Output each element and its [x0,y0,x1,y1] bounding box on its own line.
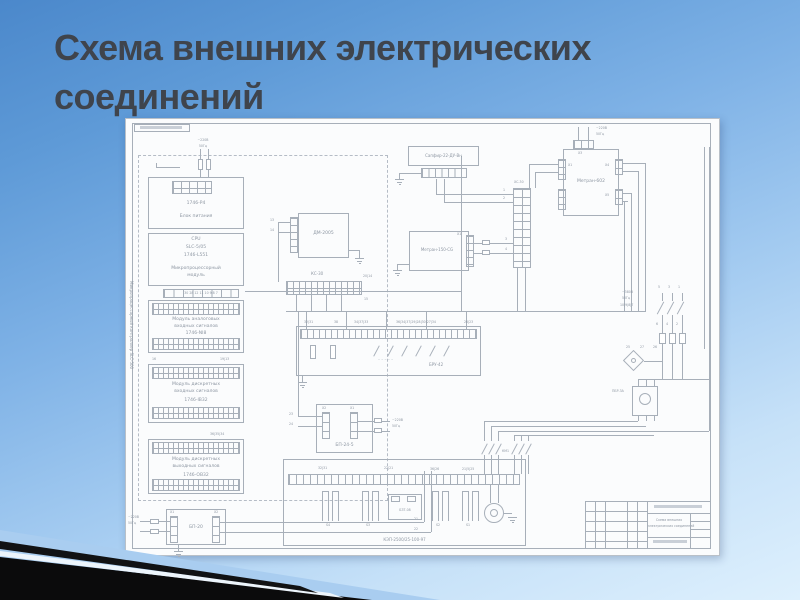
slide-title: Схема внешних электрических соединений [54,24,754,121]
wire [278,222,279,282]
connector-column [290,217,298,253]
wire [359,250,360,258]
connector-label: Х2 [322,406,326,410]
terminal-row [421,168,467,178]
wire [514,435,515,441]
fuse-icon [482,250,490,255]
wire [208,170,209,177]
wire [298,426,322,427]
wire [341,295,342,311]
bzt08-label: БЗТ-08 [388,508,422,512]
wire [311,295,312,311]
terminal-row [300,329,477,339]
wire [436,179,437,194]
wire [156,167,180,168]
wire [278,222,290,223]
wire [490,485,491,503]
wire [529,164,558,165]
power-label-50hz: 50Гц [596,132,604,136]
title-block-line [647,537,711,538]
connector-label: Х1 [170,510,174,514]
slide-title-line1: Схема внешних электрических [54,24,754,73]
pbr3a-label: ПБР-3А [612,389,624,393]
terminal-row [152,338,240,350]
switch-icon [372,491,379,521]
switch-label: S2 [436,523,440,527]
switch-icon [442,491,449,521]
pin-label: 32|31 [304,320,313,324]
pin-label: 25 [626,345,630,349]
di-line: Модуль дискретных [148,382,244,388]
pin-label: 16 [152,357,156,361]
wire [498,431,499,441]
wire [638,416,639,421]
wire [662,293,663,301]
bzt-tab [391,496,400,502]
switch-icon [462,491,469,521]
pin-label: 2 [503,196,505,200]
pin-label: 6 [656,322,658,326]
switch-label: S3 [366,523,370,527]
pin-label: 4 [505,247,507,251]
connector-label: Х5 [605,193,609,197]
wire [709,147,710,431]
ai-model: 1746-NI8 [148,331,244,337]
fuse-icon [150,529,159,534]
wire [484,455,485,474]
wire [514,435,654,436]
controller-label: Микропроцессорный контроллер SLC-500 [129,281,134,496]
title-block-line [647,513,711,514]
wire [528,435,529,441]
pin-label: 21|5|25 [462,467,474,471]
wire [484,421,485,441]
do-model: 1746-OB32 [148,473,244,479]
sapfir-label: Сапфир-22-ДУ-Вн [408,153,479,158]
connector-label: Х1 [568,163,572,167]
wire [662,344,663,379]
pin-label: 26|23 [464,320,473,324]
title-block-text-strip [654,505,702,508]
xs30-label: ХС-30 [514,180,524,184]
wire [704,147,705,349]
connector-x3 [573,140,594,149]
wire [491,426,646,427]
wire [645,163,646,311]
ground-icon [355,258,364,264]
wire [682,315,683,333]
cpu-line: CPU [148,237,244,243]
wire [525,268,526,311]
ground-icon [298,382,307,388]
terminal-row [152,303,240,315]
wire [528,455,529,474]
switch-icon [472,491,479,521]
wire [624,201,625,311]
wire [672,344,673,379]
connector-column [322,412,330,439]
wire [521,455,522,474]
connector-column [615,159,623,175]
switch-icon [332,491,339,521]
wire [623,171,638,172]
title-block-line [690,521,711,522]
terminal-row [152,479,240,491]
pin-label: 5 [658,285,660,289]
wire [491,455,492,474]
wire [278,232,290,233]
wire [498,455,499,474]
fuse-icon [206,159,211,170]
fuse-icon [669,333,676,344]
wire [399,173,421,174]
pin-label: 19|13 [220,357,229,361]
pin-label: 2 [676,322,678,326]
bp245-label: БП-24-5 [316,443,373,449]
pin-label: 22|21 [384,466,393,470]
wire [654,416,655,421]
wire [588,127,589,140]
connector-column [170,516,178,543]
pin-label: 24 [289,422,293,426]
wire [672,293,673,301]
power-label-50hz: 50Гц [392,424,400,428]
dm2005-label: ДМ-2005 [298,231,349,237]
wire [672,315,673,333]
cpu-line: модуль [148,273,244,279]
wire [623,163,645,164]
km1-label: КМ1 [502,449,509,453]
wire [140,531,150,532]
wire [498,431,709,432]
slide-title-line2: соединений [54,73,754,122]
kep2500-label: КЭП-2500/25-100-97 [283,537,526,542]
cpu-line: 1746-L551 [148,253,244,259]
wire [504,513,512,514]
cpu-terminal-numbers: 30 28 12 11 10 9 8 7 [163,291,239,295]
pin-label: 26 [653,345,657,349]
power-label-50hz: 50Гц [188,144,218,148]
pin-label: 36|35|34 [210,432,224,436]
pin-label: 38 [334,320,338,324]
pin-label: 1 [503,188,505,192]
switch-icon [322,491,329,521]
switch-label: S1 [466,523,470,527]
pin-label: 27 [640,345,644,349]
connector-label: Х3 [578,151,582,155]
wire [521,435,522,441]
ks30-label: КС-30 [311,271,323,276]
metran602-label: Метран-602 [563,179,619,185]
title-block-line [627,501,628,549]
wire [200,149,201,159]
fuse-icon [150,519,159,524]
lamp-icon [330,345,336,359]
wire [638,379,682,380]
drawing-sheet: Микропроцессорный контроллер SLC-500 ~22… [125,118,720,556]
connector-label: Х1 [457,232,461,236]
wire [529,164,530,188]
pin-label: 36|26 [430,467,439,471]
title-block-line [605,501,606,549]
divider [522,188,523,268]
pin-label: 15 [364,297,368,301]
di-model: 1746-IB32 [148,398,244,404]
ground-icon [393,270,402,276]
switch-label: S4 [326,523,330,527]
wire [298,416,322,417]
title-block-line [595,501,596,549]
connector-column [350,412,358,439]
pin-label: 32|31 [318,466,327,470]
switch-icon [432,491,439,521]
connector-column [558,189,566,210]
ground-icon [174,551,183,557]
cpu-line: SLC-5/05 [148,245,244,251]
title-block-line [690,529,711,530]
ground-icon [508,517,517,523]
pin-label: 10|9|8|7 [620,303,633,307]
wire [517,268,518,311]
wire [638,171,639,311]
wire [474,243,478,244]
power-label-50hz: 50Гц [128,521,136,525]
cpu-line: Микропроцессорный [148,266,244,272]
motor-inner [490,509,498,517]
wire [484,421,638,422]
fuse-icon [198,159,203,170]
power-label-50hz: 50Гц [622,296,630,300]
pin-label: 14 [270,228,274,232]
fuse-icon [374,428,382,433]
bru42-label: БРУ-42 [429,362,443,367]
title-block-name: электрических соединений [648,524,690,528]
wire [644,361,662,362]
connector-label: Х1 [350,406,354,410]
pin-label: 20|14 [363,274,372,278]
corner-stamp-text-strip [140,126,182,129]
metran150-label: Метран-150-CG [409,247,465,252]
wire [654,379,655,386]
wire [682,293,683,301]
terminal-row [152,407,240,419]
slide: Схема внешних электрических соединений М… [0,0,800,600]
fuse-icon [374,418,382,423]
connector-label: Х4 [605,163,609,167]
wire [535,172,536,188]
title-block-name: Схема внешних [648,518,690,522]
wire [436,194,513,195]
wire [200,170,201,177]
fuse-icon [482,240,490,245]
wire [474,253,478,254]
terminal-row [152,442,240,454]
wire [156,163,157,168]
wire [514,455,515,474]
ai-line: входных сигналов [148,324,244,330]
connector-column [466,235,474,267]
wire [444,179,445,202]
wire [491,426,492,441]
terminal-block-ks30 [286,281,362,295]
pbr-symbol [639,393,651,405]
pin-label: 4 [666,322,668,326]
connector-column [615,189,623,205]
power-label-380v: ~380В [622,290,633,294]
do-line: выходных сигналов [148,464,244,470]
wire [349,250,359,251]
rectifier-inner [631,358,636,363]
wire [498,485,499,503]
switch-icon [362,491,369,521]
wire [296,295,297,311]
power-label-220v: ~220В [596,126,607,130]
wire [662,315,663,333]
fuse-icon [679,333,686,344]
power-label-220v: ~220В [128,515,139,519]
p4-name: Блок питания [148,214,244,220]
wire [245,291,461,292]
wire [326,295,327,311]
wire [159,521,170,522]
do-line: Модуль дискретных [148,457,244,463]
pin-label: 3 [668,285,670,289]
p4-model: 1746-P4 [148,201,244,207]
wire [682,379,709,380]
pin-label: 3 [505,237,507,241]
wire [646,379,647,386]
wire [444,202,513,203]
wire [535,172,558,173]
dashes: – – – – – [378,357,393,362]
pin-label: 1 [678,285,680,289]
terminal-row [172,181,212,194]
ground-icon [395,179,404,185]
title-block-line [690,513,691,549]
wire [646,416,647,421]
power-label-220v: ~220В [392,418,403,422]
power-label-220v: ~220В [188,138,218,142]
terminal-row [152,367,240,379]
wire [159,531,170,532]
terminal-row [288,474,520,485]
di-line: входных сигналов [148,389,244,395]
pin-label: 34|37|33 [354,320,368,324]
pin-label: 36|34|37|29|28|30|27|34 [396,320,436,324]
pin-label: 13 [270,218,274,222]
ai-line: Модуль аналоговых [148,317,244,323]
bp20-label: БП-20 [178,525,214,531]
lamp-icon [310,345,316,359]
fuse-icon [659,333,666,344]
wire [140,521,150,522]
wire [638,379,639,386]
wire [397,264,409,265]
wire [208,149,209,159]
wire [623,193,631,194]
bzt-tab [407,496,416,502]
connector-column [558,159,566,180]
wire [682,344,683,379]
title-block-line [637,501,638,549]
connector-label: Х2 [214,510,218,514]
title-block-text-strip [653,540,687,543]
wire [578,127,579,140]
wire [298,311,299,416]
pin-label: 23 [289,412,293,416]
